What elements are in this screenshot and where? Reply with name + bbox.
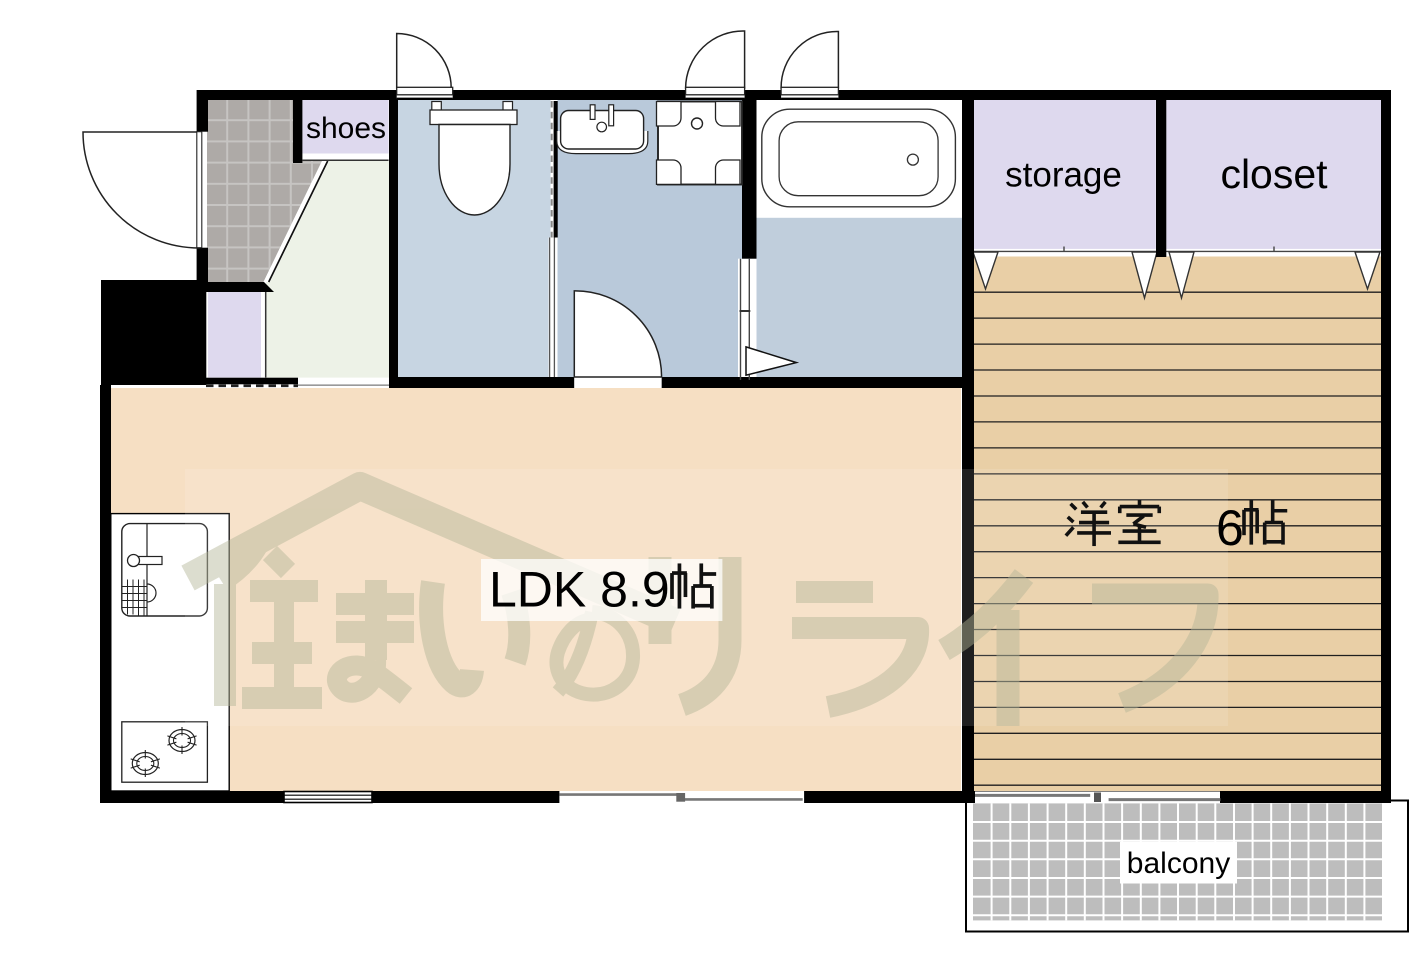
svg-text:closet: closet — [1220, 151, 1328, 197]
svg-text:storage: storage — [1005, 156, 1122, 195]
svg-text:6: 6 — [1216, 500, 1244, 556]
svg-text:LDK 8.9: LDK 8.9 — [489, 562, 670, 618]
svg-text:shoes: shoes — [306, 112, 386, 145]
svg-text:balcony: balcony — [1127, 847, 1230, 880]
